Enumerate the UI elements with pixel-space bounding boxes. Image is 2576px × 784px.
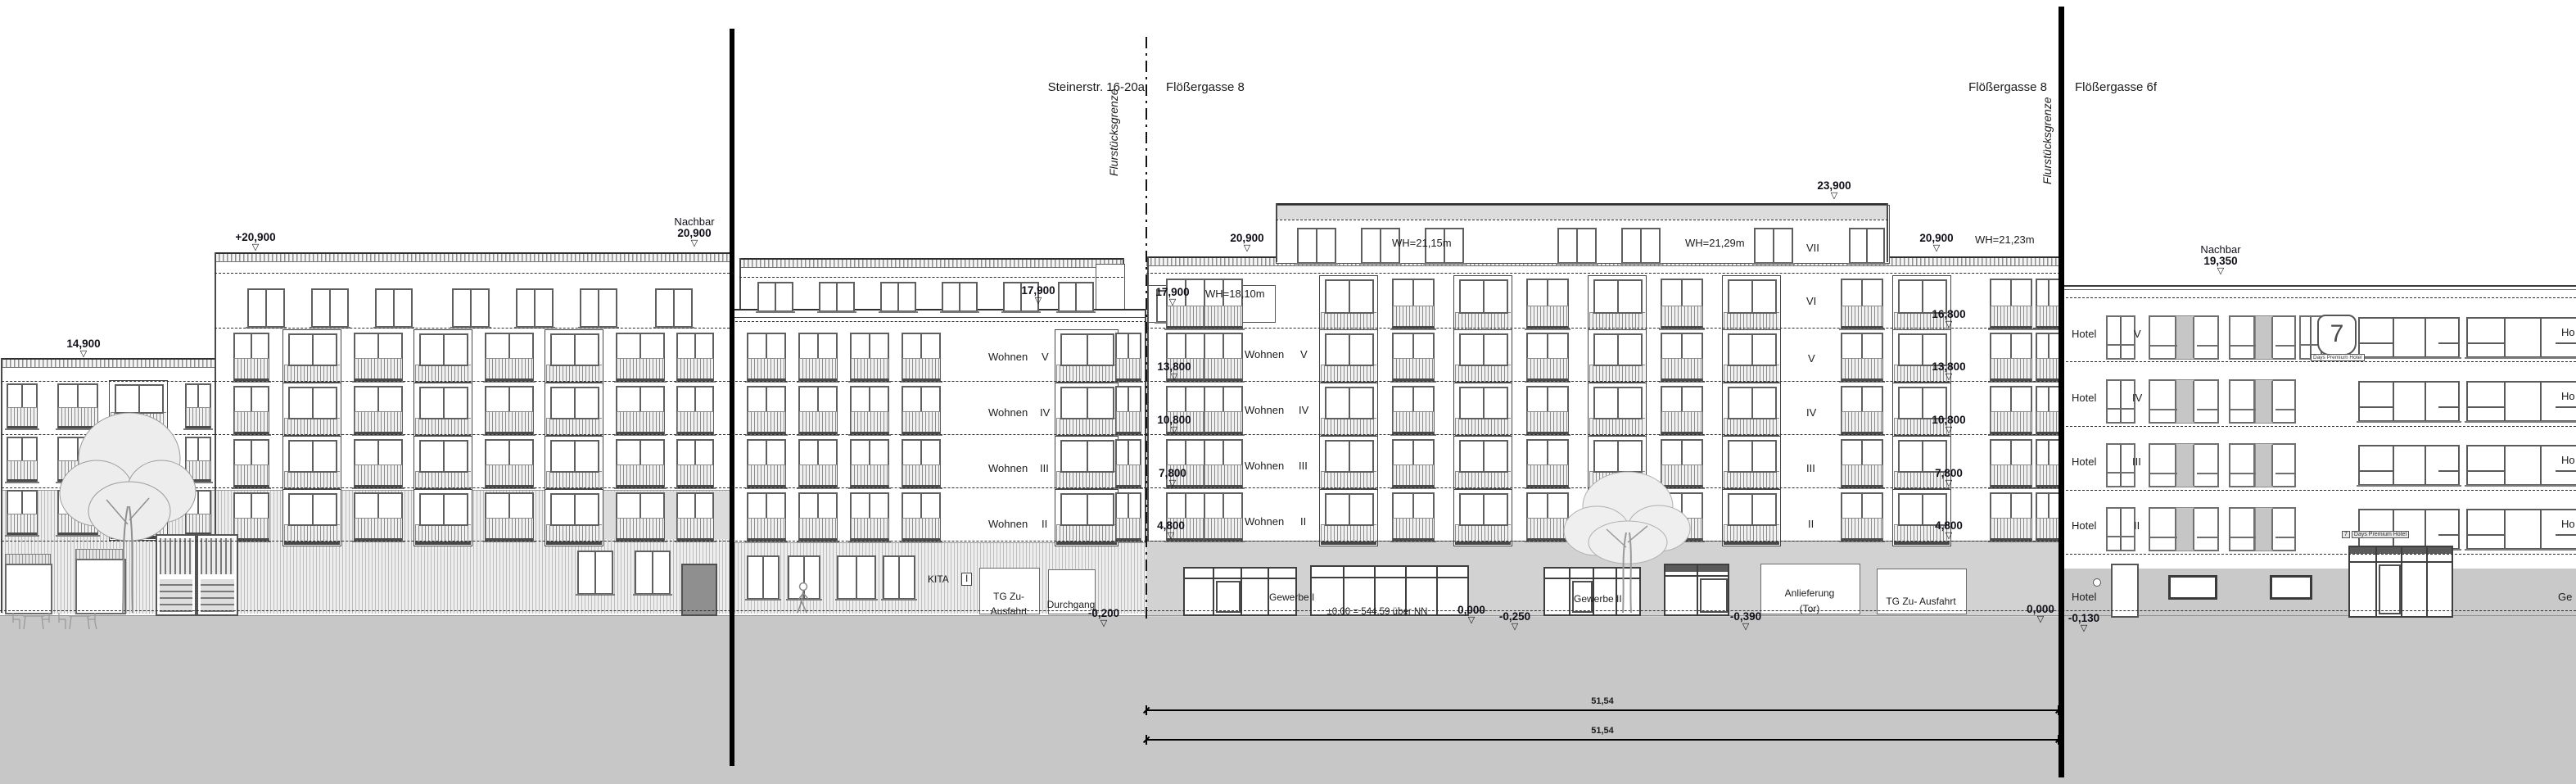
elev-7800-left: 7,800▽ — [1159, 468, 1186, 487]
hotel-ground-wall — [2062, 569, 2576, 616]
door-slats-upper — [201, 538, 234, 574]
window-mullion — [1922, 335, 1923, 365]
storefront-door — [1216, 581, 1241, 613]
balcony-railing — [617, 465, 664, 487]
storefront-mullion — [2426, 547, 2428, 616]
balcony-railing — [415, 524, 471, 545]
window — [676, 333, 714, 382]
window-mullion — [2120, 445, 2122, 486]
door-slats-lower — [201, 579, 234, 612]
balcony-railing — [1527, 358, 1568, 381]
transom-bar — [2438, 342, 2458, 344]
level-triangle-icon: ▽ — [235, 244, 275, 251]
balcony-railing — [677, 358, 713, 381]
balcony-railing — [677, 465, 713, 487]
transom-bar — [2108, 408, 2134, 410]
transom-bar — [2438, 534, 2458, 536]
balcony-railing — [851, 465, 888, 487]
window-mullion — [959, 283, 960, 310]
elev-20900-d-right: 20,900▽ — [1919, 233, 1953, 252]
window — [1392, 439, 1435, 488]
street-label-flossergasse8-right: Flößergasse 8 — [1968, 80, 2047, 94]
level-triangle-icon: ▽ — [2200, 268, 2240, 274]
hotel-window-group — [2149, 507, 2219, 551]
wall-height-21-23: WH=21,23m — [1975, 234, 2035, 247]
street-label-steinerstr: Steinerstr. 16-20a — [1048, 80, 1145, 94]
window-sill — [1423, 263, 1466, 265]
window — [1621, 228, 1661, 264]
window — [1392, 333, 1435, 382]
window — [1115, 386, 1141, 435]
window-mullion — [2425, 510, 2426, 548]
window — [902, 386, 941, 435]
penthouse-fascia — [1277, 206, 1887, 220]
balcony-railing — [1116, 411, 1141, 434]
window — [288, 333, 337, 366]
window — [1557, 228, 1597, 264]
window-loggia — [414, 383, 472, 440]
hotel-window-band — [2358, 445, 2460, 486]
balcony-railing — [1527, 411, 1568, 434]
balcony-railing — [58, 460, 97, 482]
window-sill — [1001, 311, 1041, 313]
window-mullion — [1087, 335, 1088, 365]
elev-plus20900: +20,900▽ — [235, 232, 275, 251]
facade-panel — [2255, 379, 2273, 424]
hotel-roof-line — [2062, 285, 2576, 287]
window — [1325, 333, 1374, 366]
transom-bar — [2438, 406, 2458, 408]
level-triangle-icon: ▽ — [1817, 193, 1851, 199]
floor-dash-line — [1146, 541, 2060, 542]
transom-bar — [2108, 472, 2134, 474]
window-mullion — [312, 442, 314, 471]
window-mullion — [1922, 442, 1923, 471]
floor-dash-line — [2062, 361, 2576, 362]
window-mullion — [312, 388, 314, 418]
balcony-railing — [2036, 306, 2061, 329]
transom-bar — [2360, 406, 2393, 408]
balcony-railing — [1056, 524, 1117, 545]
window-loggia — [1722, 383, 1781, 440]
window-mullion — [534, 290, 536, 326]
balcony-railing — [617, 358, 664, 381]
window — [115, 384, 164, 414]
window — [7, 490, 38, 536]
window — [115, 491, 164, 520]
window — [850, 333, 889, 382]
window — [577, 551, 613, 595]
transom-bar — [2556, 534, 2576, 536]
window — [354, 492, 403, 542]
floor-numeral-iv-right: IV — [1806, 407, 1816, 419]
window — [942, 282, 978, 312]
window-loggia — [1722, 329, 1781, 387]
window-sill — [1620, 263, 1662, 265]
window-mullion — [1483, 442, 1485, 471]
window-mullion — [329, 290, 331, 326]
window-mullion — [2425, 383, 2426, 420]
window — [1661, 333, 1703, 382]
window — [676, 492, 714, 542]
hotel-label-cut-iii: Ho — [2561, 455, 2575, 467]
floor-dash-line — [2062, 297, 2576, 298]
window-sill — [817, 311, 856, 313]
window — [1990, 492, 2032, 542]
balcony-slab — [5, 535, 39, 537]
window — [550, 333, 599, 366]
window-mullion — [2175, 381, 2176, 422]
ground-label-kita: KITA — [928, 574, 949, 586]
window-loggia — [414, 329, 472, 387]
balcony-slab — [1659, 329, 1705, 330]
window — [57, 383, 98, 429]
hotel-lamp — [2093, 578, 2101, 587]
window — [115, 437, 164, 467]
window-mullion — [652, 552, 653, 593]
storefront-mullion — [1436, 567, 1438, 614]
window — [516, 288, 554, 328]
transom-bar — [2197, 409, 2217, 410]
balcony-railing — [546, 524, 602, 545]
window-sill — [786, 599, 822, 600]
window-mullion — [138, 386, 140, 412]
window — [2106, 507, 2135, 551]
window-mullion — [1349, 335, 1350, 365]
window-loggia — [1453, 436, 1512, 493]
balcony-slab — [183, 482, 213, 483]
window-mullion — [2253, 317, 2255, 358]
window — [419, 493, 468, 526]
floor-dash-line — [2, 541, 215, 542]
storefront-mullion — [1241, 569, 1242, 614]
window-mullion — [2175, 509, 2176, 550]
window-mullion — [1922, 495, 1923, 524]
window-loggia — [1453, 329, 1512, 387]
window-mullion — [2504, 319, 2506, 356]
window — [311, 288, 349, 328]
window — [1392, 279, 1435, 329]
window — [1115, 492, 1141, 542]
balcony-railing — [111, 412, 166, 433]
window-sill — [2357, 357, 2461, 359]
transom-bar — [2150, 345, 2177, 347]
window-mullion — [897, 283, 899, 310]
level-triangle-icon: ▽ — [1932, 374, 1965, 380]
balcony-slab — [56, 428, 100, 430]
balcony-railing — [1116, 358, 1141, 381]
balcony-railing — [355, 358, 402, 381]
window — [616, 439, 665, 488]
elev-17900-d-left: 17,900▽ — [1155, 287, 1189, 306]
balcony-railing — [486, 518, 533, 541]
balcony-railing — [799, 411, 837, 434]
window — [1728, 493, 1777, 526]
window — [1728, 440, 1777, 473]
balcony-railing — [799, 465, 837, 487]
storefront-mullion — [1213, 569, 1214, 614]
window-sill — [1359, 263, 1402, 265]
balcony-railing — [617, 518, 664, 541]
window-mullion — [2540, 446, 2542, 484]
window-mullion — [1576, 229, 1578, 262]
window — [288, 440, 337, 473]
cafe-glazing — [5, 564, 52, 614]
window — [616, 333, 665, 382]
hotel-ground-label: Hotel — [2072, 591, 2096, 604]
floor-dash-line — [739, 277, 1123, 278]
window — [1841, 279, 1883, 329]
balcony-railing — [186, 514, 210, 535]
window — [419, 387, 468, 419]
window-loggia — [1453, 383, 1512, 440]
window-mullion — [1349, 495, 1350, 524]
window-mullion — [2393, 446, 2394, 484]
floor-numeral-iii-c: III — [1040, 463, 1049, 475]
window — [798, 439, 838, 488]
hotel-window-group — [2229, 443, 2296, 487]
transom-bar — [2556, 470, 2576, 472]
balcony-railing — [799, 358, 837, 381]
level-triangle-icon: ▽ — [66, 351, 100, 357]
door-slats-lower — [160, 579, 192, 612]
level-triangle-icon: ▽ — [1730, 623, 1761, 630]
window-mullion — [673, 290, 675, 326]
level-triangle-icon: ▽ — [674, 240, 714, 247]
window-mullion — [898, 557, 900, 598]
window — [1990, 279, 2032, 329]
balcony-railing — [1321, 524, 1376, 545]
window-mullion — [443, 495, 445, 524]
balcony-railing — [1455, 524, 1511, 545]
window — [1060, 333, 1114, 366]
ground-numeral-gewerbe1: I — [1312, 592, 1314, 604]
transom-bar — [2108, 344, 2134, 346]
window-mullion — [1751, 442, 1753, 471]
window-loggia — [1588, 275, 1647, 334]
level-triangle-icon: ▽ — [1159, 480, 1186, 487]
window-loggia — [545, 329, 603, 387]
elev-0000-gewerbe: 0,000▽ — [1457, 605, 1485, 623]
balcony-railing — [902, 411, 940, 434]
balcony-railing — [1393, 518, 1434, 541]
floor-numeral-v-right: V — [1808, 353, 1815, 365]
window-mullion — [1087, 388, 1088, 418]
window — [1526, 386, 1569, 435]
floor-numeral-ii-d: II — [1300, 516, 1306, 528]
window — [1754, 228, 1793, 264]
window — [757, 282, 793, 312]
window-mullion — [1922, 388, 1923, 418]
garage-door — [156, 534, 197, 616]
window — [419, 333, 468, 366]
window-mullion — [574, 442, 576, 471]
balcony-railing — [1661, 411, 1702, 434]
window-mullion — [1617, 495, 1619, 524]
window — [452, 288, 490, 328]
elev-0000-right: 0,000▽ — [2027, 604, 2054, 623]
floor-label-wohnen-iv-d: Wohnen — [1245, 405, 1284, 417]
window-mullion — [2120, 509, 2122, 550]
transom-bar — [2197, 537, 2217, 538]
window-mullion — [443, 335, 445, 365]
hotel-sign-caption: Days Premium Hotel — [2311, 354, 2365, 361]
elev-10800-right: 10,800▽ — [1932, 415, 1965, 433]
window-loggia — [1453, 489, 1512, 546]
elev-10800-left: 10,800▽ — [1157, 415, 1191, 433]
window — [819, 282, 855, 312]
level-triangle-icon: ▽ — [1935, 480, 1963, 487]
window-loggia — [545, 383, 603, 440]
window — [1593, 387, 1643, 419]
dimension-51-54-lower — [1146, 739, 2059, 741]
window-sill — [745, 599, 781, 600]
window-mullion — [574, 388, 576, 418]
elev-23900: 23,900▽ — [1817, 180, 1851, 199]
hotel-label-cut-v: Ho — [2561, 327, 2575, 339]
facade-panel — [2176, 315, 2194, 360]
dimension-value: 51,54 — [1591, 726, 1614, 736]
window — [1728, 387, 1777, 419]
elev-minus0390: -0,390▽ — [1730, 611, 1761, 630]
transom-bar — [2150, 537, 2177, 538]
balcony-slab — [183, 428, 213, 430]
window — [185, 437, 211, 483]
window-loggia — [1588, 329, 1647, 387]
stair-bulkhead — [1096, 264, 1125, 310]
transom-bar — [2108, 536, 2134, 537]
window — [788, 555, 820, 600]
balcony-railing — [1991, 465, 2031, 487]
floor-dash-line — [215, 328, 730, 329]
window-loggia — [282, 489, 341, 546]
window-mullion — [443, 442, 445, 471]
window-mullion — [1483, 495, 1485, 524]
window — [1526, 439, 1569, 488]
window-mullion — [138, 439, 140, 465]
floor-dash-line — [1146, 487, 2060, 488]
window-mullion — [2271, 445, 2273, 486]
window — [850, 386, 889, 435]
balcony-railing — [799, 518, 837, 541]
edge-line — [1887, 203, 1888, 262]
window — [1325, 493, 1374, 526]
window — [1728, 333, 1777, 366]
floor-dash-line — [731, 321, 1146, 322]
floor-dash-line — [2, 487, 215, 488]
window-mullion — [2271, 317, 2273, 358]
balcony-railing — [234, 411, 269, 434]
floor-numeral-v-c: V — [1042, 351, 1049, 364]
window-loggia — [109, 487, 168, 541]
wall-height-18-10: WH=18,10m — [1205, 288, 1265, 301]
floor-numeral-iii-d: III — [1299, 460, 1308, 473]
window-mullion — [1866, 229, 1868, 262]
balcony-railing — [1842, 411, 1882, 434]
balcony-railing — [1393, 411, 1434, 434]
cafe-glazing — [75, 559, 126, 614]
window-mullion — [1483, 388, 1485, 418]
window — [1297, 228, 1336, 264]
transom-bar — [2150, 409, 2177, 410]
property-line-label: Flurstücksgrenze — [1107, 88, 1120, 176]
floor-numeral-v-d: V — [1300, 349, 1308, 361]
window — [580, 288, 617, 328]
window-mullion — [2193, 381, 2194, 422]
window — [485, 333, 534, 382]
transom-bar — [2275, 473, 2294, 474]
hotel-floor-numeral-iv: IV — [2132, 392, 2142, 405]
balcony-railing — [7, 460, 37, 482]
window-mullion — [1349, 442, 1350, 471]
window-loggia — [109, 380, 168, 434]
balcony-railing — [748, 518, 785, 541]
window — [354, 386, 403, 435]
window — [1392, 492, 1435, 542]
window — [1325, 440, 1374, 473]
balcony-slab — [1988, 329, 2034, 330]
window-mullion — [574, 335, 576, 365]
window — [485, 386, 534, 435]
balcony-slab — [1390, 329, 1436, 330]
window-mullion — [1751, 495, 1753, 524]
window — [550, 493, 599, 526]
window — [1526, 492, 1569, 542]
window — [676, 386, 714, 435]
window-loggia — [1319, 436, 1378, 493]
transom-bar — [2468, 406, 2504, 408]
balcony-railing — [1527, 465, 1568, 487]
ground-label-gewerbe2: Gewerbe — [1574, 594, 1614, 605]
window-sill — [835, 599, 878, 600]
hotel-sign-7: 7 — [2317, 315, 2357, 356]
facade-panel — [2176, 507, 2194, 551]
window-loggia — [282, 329, 341, 387]
elevation-drawing: 7Days Premium Hotel7Days Premium Hotel51… — [0, 0, 2576, 784]
window-loggia — [1588, 436, 1647, 493]
window — [1204, 333, 1243, 382]
hotel-window-group — [2229, 507, 2296, 551]
window-mullion — [2393, 510, 2394, 548]
sign-text: Days Premium Hotel — [2352, 531, 2409, 538]
window — [747, 492, 786, 542]
window — [676, 439, 714, 488]
transom-bar — [2438, 470, 2458, 472]
window-sill — [2465, 357, 2576, 359]
window — [1990, 439, 2032, 488]
window — [883, 555, 915, 600]
ground-numeral-gewerbe2: II — [1616, 594, 1622, 605]
hotel-label-cut-ii: Ho — [2561, 519, 2575, 531]
window — [1115, 333, 1141, 382]
window — [485, 492, 534, 542]
facade-panel — [2176, 443, 2194, 487]
window-mullion — [1751, 281, 1753, 312]
window — [1661, 386, 1703, 435]
balcony-slab — [1164, 329, 1207, 330]
balcony-railing — [2036, 358, 2061, 381]
window-loggia — [1722, 489, 1781, 546]
floor-dash-line — [2062, 426, 2576, 427]
floor-dash-line — [2, 434, 215, 435]
window-loggia — [1055, 329, 1119, 387]
balcony-railing — [1393, 465, 1434, 487]
hotel-storefront — [2348, 546, 2453, 618]
window — [902, 492, 941, 542]
dimension-value: 51,54 — [1591, 696, 1614, 706]
marker-prefix: Nachbar — [2200, 244, 2240, 256]
level-triangle-icon: ▽ — [1457, 617, 1485, 623]
